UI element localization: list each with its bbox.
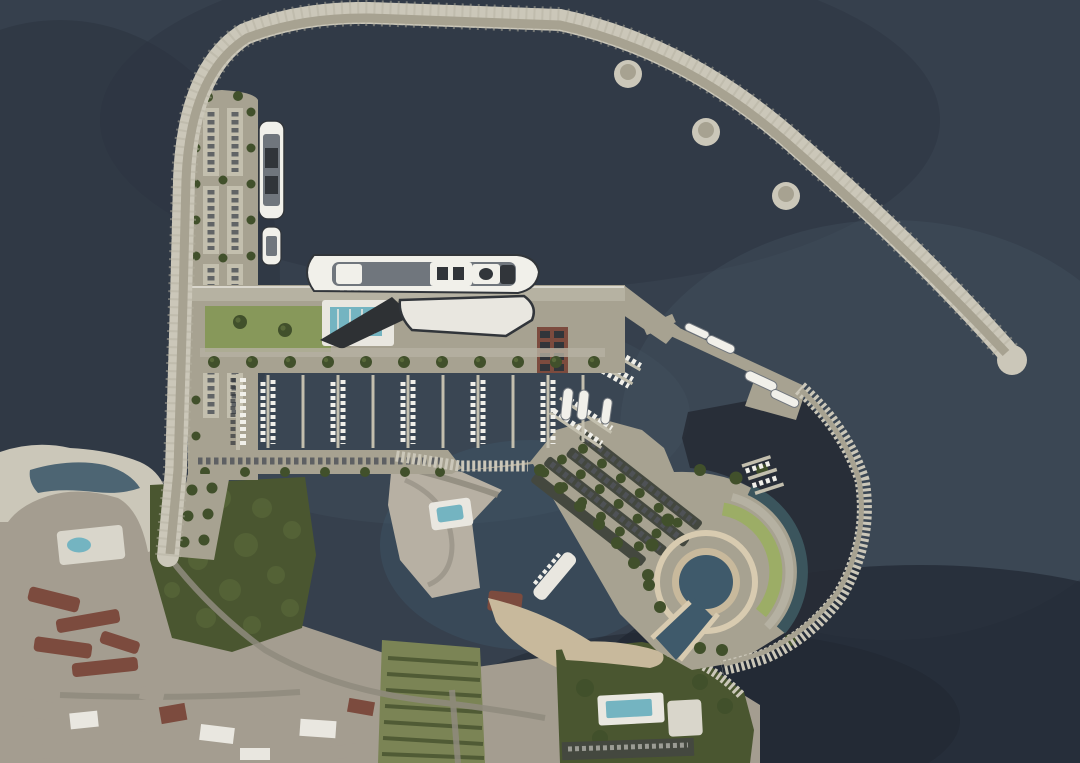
resort-pool (67, 538, 91, 553)
club-pool (606, 699, 653, 718)
cruise-ship (307, 255, 539, 293)
terminal-roof (400, 296, 534, 336)
ferry (259, 121, 284, 219)
masterplan-svg (0, 0, 1080, 763)
resort (56, 525, 125, 566)
aerial-render (0, 0, 1080, 763)
terminal-lawn (205, 306, 331, 352)
promenade-road (200, 348, 605, 357)
cruise-platform (188, 285, 680, 373)
funnel (500, 265, 515, 284)
tender-boat (262, 227, 281, 265)
